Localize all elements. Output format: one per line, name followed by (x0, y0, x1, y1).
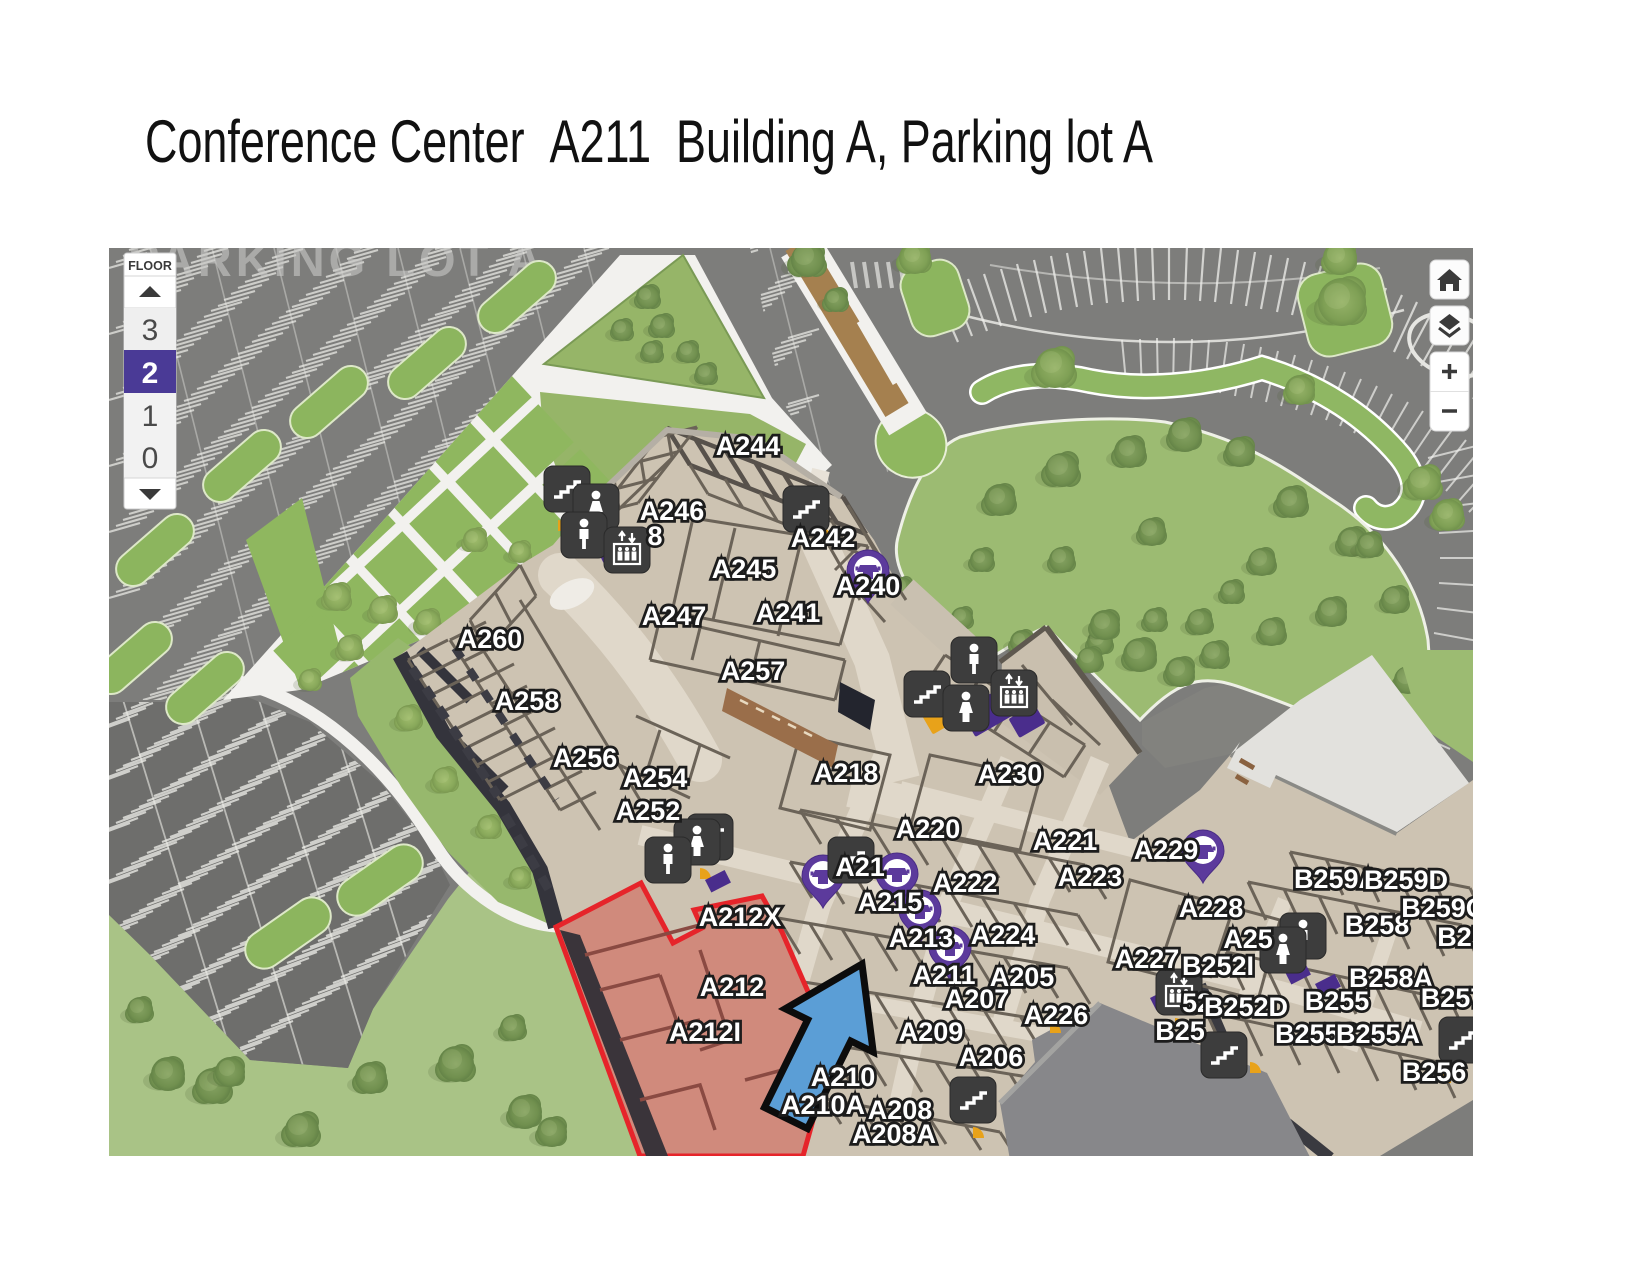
svg-text:FLOOR: FLOOR (128, 259, 172, 273)
svg-text:A227: A227 (1115, 944, 1180, 974)
svg-text:B252I: B252I (1182, 951, 1254, 981)
svg-text:A254: A254 (623, 763, 688, 793)
svg-text:A221: A221 (1033, 826, 1098, 856)
svg-text:A229: A229 (1134, 835, 1199, 865)
svg-text:1: 1 (142, 400, 159, 433)
svg-text:A252: A252 (616, 796, 681, 826)
svg-text:B256: B256 (1402, 1057, 1467, 1087)
svg-text:A222: A222 (933, 868, 998, 898)
svg-text:Conference Center A211 Build: Conference Center A211 Building A, Parki… (145, 108, 1153, 175)
svg-text:B25: B25 (1155, 1016, 1205, 1046)
svg-text:B258: B258 (1345, 910, 1410, 940)
svg-text:A208A: A208A (852, 1119, 936, 1149)
svg-text:A213: A213 (889, 923, 954, 953)
svg-text:2: 2 (142, 357, 159, 390)
svg-text:A247: A247 (642, 601, 707, 631)
svg-text:A256: A256 (553, 743, 618, 773)
svg-text:A240: A240 (836, 571, 901, 601)
svg-text:A207: A207 (945, 984, 1010, 1014)
svg-text:A223: A223 (1058, 862, 1123, 892)
svg-text:A258: A258 (495, 686, 560, 716)
svg-text:A206: A206 (959, 1042, 1024, 1072)
svg-text:A226: A226 (1024, 1000, 1089, 1030)
svg-text:A210: A210 (811, 1062, 876, 1092)
svg-text:A241: A241 (756, 598, 821, 628)
svg-text:A257: A257 (721, 656, 786, 686)
svg-text:A210A: A210A (781, 1090, 865, 1120)
svg-text:A21: A21 (835, 852, 885, 882)
svg-text:A245: A245 (712, 554, 777, 584)
svg-text:B259D: B259D (1364, 865, 1448, 895)
svg-text:A220: A220 (896, 814, 961, 844)
svg-text:A212X: A212X (699, 902, 782, 932)
svg-text:A260: A260 (458, 624, 523, 654)
svg-text:A224: A224 (971, 920, 1036, 950)
svg-text:A230: A230 (978, 759, 1043, 789)
svg-text:A244: A244 (716, 431, 781, 461)
svg-text:3: 3 (142, 314, 159, 347)
svg-text:A218: A218 (814, 758, 879, 788)
svg-text:0: 0 (142, 442, 159, 475)
svg-text:A228: A228 (1179, 893, 1244, 923)
svg-text:A242: A242 (791, 523, 856, 553)
svg-text:A209: A209 (899, 1017, 964, 1047)
svg-text:B255A: B255A (1336, 1019, 1420, 1049)
svg-text:A215: A215 (858, 887, 923, 917)
svg-text:8: 8 (647, 521, 662, 551)
svg-text:B252D: B252D (1204, 992, 1288, 1022)
svg-text:A25: A25 (1223, 924, 1273, 954)
svg-text:A212I: A212I (669, 1017, 741, 1047)
svg-text:A212: A212 (700, 972, 765, 1002)
